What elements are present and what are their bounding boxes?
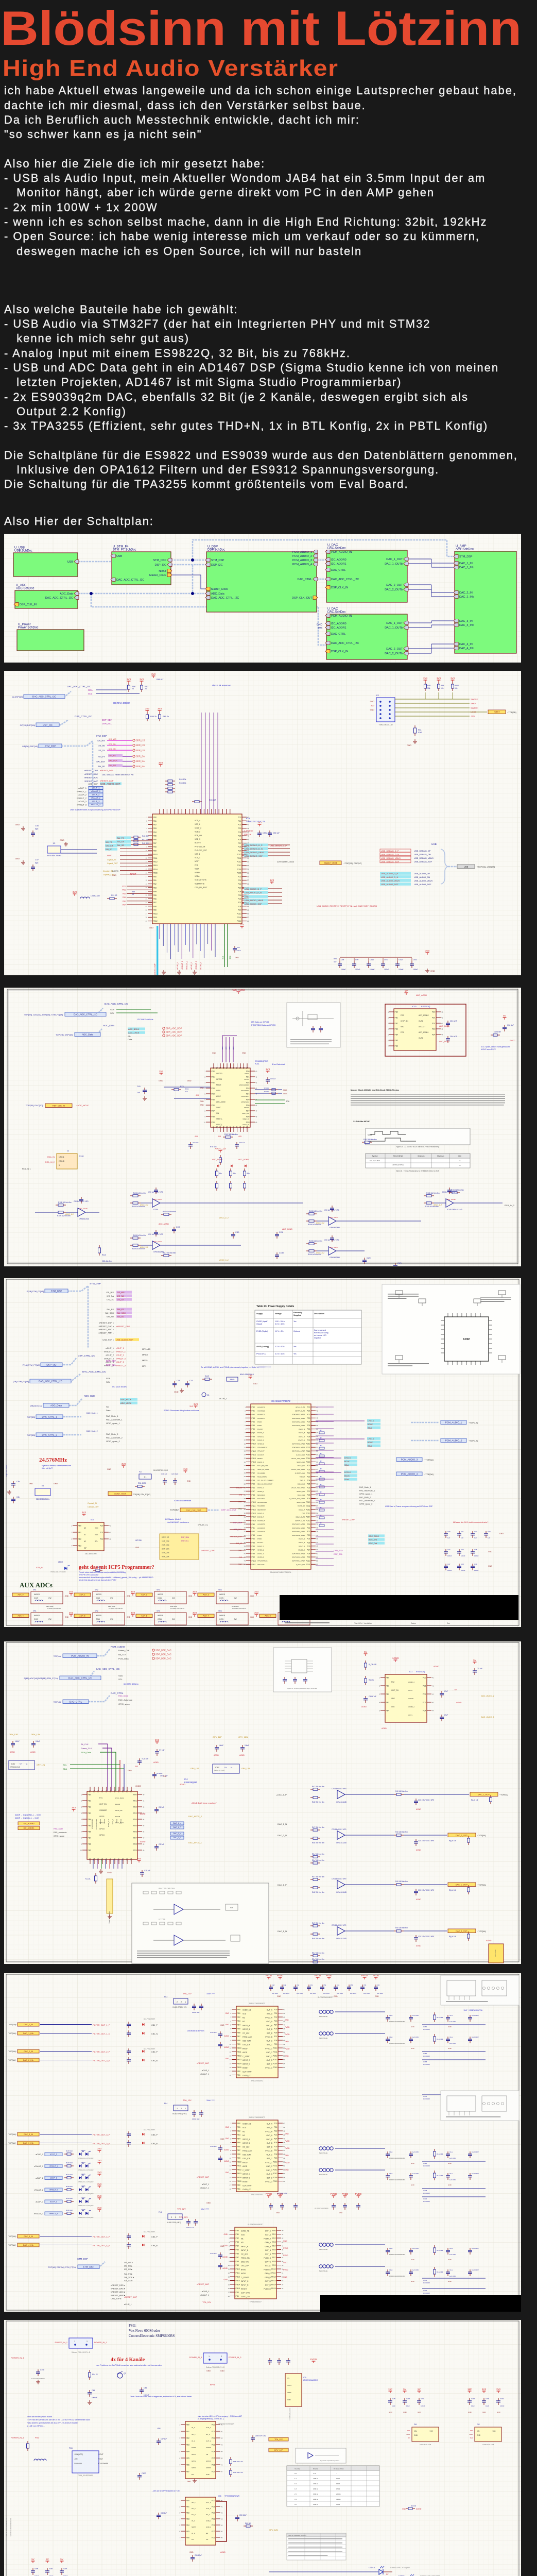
svg-text:nRESET_DAC ▸: nRESET_DAC ▸ [111, 2288, 125, 2290]
svg-text:C566E-AFL-CV34Q342: C566E-AFL-CV34Q342 [78, 2205, 94, 2207]
svg-text:PB2: PB2 [252, 1414, 255, 1416]
svg-text:P63: P63 [69, 2447, 73, 2449]
svg-text:GND: GND [375, 1995, 379, 1997]
svg-text:+VIN (VCC): +VIN (VCC) [74, 2453, 83, 2455]
svg-text:GND: GND [220, 2024, 224, 2026]
svg-text:PCM_Data: PCM_Data [81, 1751, 91, 1754]
svg-text:R65 2k: R65 2k [163, 716, 169, 718]
svg-text:55: 55 [283, 2066, 285, 2069]
svg-text:18: 18 [146, 879, 148, 882]
svg-text:PD14: PD14 [237, 868, 241, 870]
svg-text:10uF: 10uF [471, 2405, 475, 2407]
svg-text:AGND_1: AGND_1 [408, 1706, 414, 1708]
svg-text:DSP_CLK_OUT: DSP_CLK_OUT [186, 1509, 201, 1512]
svg-text:USB_DEBUG_SOF: USB_DEBUG_SOF [381, 860, 400, 863]
svg-text:C14: C14 [189, 1380, 193, 1382]
svg-text:I2C MAX 400kHz: I2C MAX 400kHz [113, 702, 130, 704]
svg-text:AGND: AGND [434, 1666, 439, 1668]
svg-text:32 R_20k: 32 R_20k [162, 1548, 169, 1550]
svg-text:PD4: PD4 [238, 831, 241, 833]
svg-text:C76 15p C0G / NP0: C76 15p C0G / NP0 [332, 1788, 347, 1790]
svg-text:TOP[3B]+: TOP[3B]+ [170, 1509, 179, 1511]
svg-text:PD7: PD7 [307, 1549, 310, 1551]
svg-text:GPIO4: GPIO4 [99, 1834, 105, 1836]
svg-text:PB12: PB12 [153, 920, 158, 922]
svg-text:SCL: SCL [238, 1508, 242, 1510]
svg-text:100nF: 100nF [500, 2405, 505, 2407]
svg-text:SDR_DSP_DAC: SDR_DSP_DAC [155, 1657, 171, 1660]
svg-text:BCLK_IN3: BCLK_IN3 [298, 1494, 305, 1496]
svg-text:TOP[5A]+: TOP[5A]+ [8, 2133, 16, 2136]
svg-text:220k thin film: 220k thin film [102, 1260, 112, 1262]
svg-text:DGND_6: DGND_6 [257, 1512, 264, 1514]
svg-text:PD2: PD2 [212, 2437, 215, 2439]
svg-text:GND: GND [225, 2126, 229, 2128]
svg-text:GND: GND [238, 1501, 242, 1503]
svg-text:VSS_1: VSS_1 [195, 853, 200, 855]
svg-text:PB5: PB5 [153, 894, 157, 896]
svg-text:DSP_SDA: DSP_SDA [106, 1360, 116, 1362]
svg-text:SCL2_M/_MP2: SCL2_M/_MP2 [257, 1465, 268, 1467]
svg-text:PG1: PG1 [401, 1031, 404, 1033]
svg-text:IOVDD_9: IOVDD_9 [298, 1549, 305, 1551]
svg-text:Frame_CLK: Frame_CLK [81, 1747, 92, 1750]
svg-text:R1xx 3R3: R1xx 3R3 [437, 2271, 443, 2273]
svg-text:Müssen die 5V2 nicht connected: Müssen die 5V2 nicht connected sein? [453, 1521, 489, 1523]
svg-text:3V3: 3V3 [371, 705, 374, 707]
svg-text:I2S_SA: I2S_SA [117, 1295, 124, 1297]
svg-text:34: 34 [244, 1527, 246, 1529]
svg-text:GND: GND [406, 2433, 410, 2435]
svg-text:nFAULT_3: nFAULT_3 [77, 804, 87, 806]
svg-text:PB9: PB9 [236, 2264, 239, 2266]
svg-text:3V3: 3V3 [97, 2159, 102, 2162]
svg-text:1: 1 [74, 2341, 75, 2343]
svg-text:100nF: 100nF [474, 1569, 479, 1571]
svg-text:AVDD: AVDD [242, 2165, 248, 2167]
svg-text:3V3: 3V3 [470, 2437, 473, 2439]
svg-text:24LC64T-E/SN: 24LC64T-E/SN [85, 1553, 97, 1555]
svg-text:10k: 10k [455, 687, 458, 689]
svg-text:ADC_AGND1: ADC_AGND1 [419, 1031, 429, 1033]
svg-text:0.5: 0.5 [295, 2472, 297, 2475]
svg-text:BCLK_IN2: BCLK_IN2 [298, 1483, 305, 1485]
svg-text:GND: GND [15, 823, 20, 826]
svg-text:R40 140 thin film: R40 140 thin film [395, 1790, 408, 1792]
svg-text:PB5: PB5 [153, 835, 157, 837]
svg-text:100nF 1uF: 100nF 1uF [192, 2011, 200, 2013]
svg-text:PB3: PB3 [78, 1545, 82, 1547]
svg-text:PD8: PD8 [307, 1494, 310, 1496]
svg-text:SDA: SDA [88, 689, 93, 691]
svg-text:PD11: PD11 [273, 2051, 277, 2053]
svg-text:5V: 5V [46, 2558, 49, 2561]
svg-text:CCW: CCW [34, 1597, 39, 1599]
svg-text:GND: GND [448, 2162, 452, 2164]
svg-text:IN_3: IN_3 [192, 2532, 195, 2534]
svg-text:PD6: PD6 [274, 2146, 278, 2148]
svg-text:0R: 0R [320, 1445, 322, 1447]
svg-text:GND: GND [283, 2240, 287, 2242]
svg-text:AGND: AGND [224, 2160, 229, 2162]
svg-text:AGND: AGND [239, 1754, 245, 1756]
svg-text:R59: R59 [441, 685, 444, 687]
svg-text:STM_DSP: STM_DSP [153, 559, 167, 562]
svg-text:C3b: C3b [16, 1481, 20, 1483]
svg-text:DGND_8: DGND_8 [299, 1432, 305, 1434]
svg-text:PB7: PB7 [153, 842, 157, 844]
svg-text:C178: C178 [423, 2190, 427, 2192]
svg-text:Crystal_OUT: Crystal_OUT [103, 873, 115, 876]
svg-text:1uF 100V: 1uF 100V [412, 2151, 419, 2153]
svg-text:IC14A: IC14A [79, 1155, 84, 1157]
svg-text:10uF 100V: 10uF 100V [472, 2269, 479, 2271]
svg-text:PD2: PD2 [272, 2238, 276, 2240]
svg-text:100nF: 100nF [36, 1740, 40, 1742]
svg-text:SDA_M/_MSO_M/MP: SDA_M/_MSO_M/MP [257, 1483, 272, 1485]
svg-text:P6: P6 [114, 1790, 116, 1792]
svg-text:PD13: PD13 [273, 2173, 278, 2175]
svg-text:WIPER: WIPER [158, 1594, 164, 1596]
svg-text:PD3: PD3 [423, 1702, 426, 1704]
svg-text:PB7: PB7 [252, 1549, 255, 1551]
svg-text:0R: 0R [320, 1476, 322, 1478]
svg-text:nRESET_DSP: nRESET_DSP [100, 769, 113, 772]
svg-text:PVDD: PVDD [285, 2048, 290, 2050]
svg-text:DSP_CTRL_I2C: DSP_CTRL_I2C [75, 715, 92, 718]
svg-text:PB2: PB2 [78, 1538, 82, 1540]
svg-text:GND: GND [276, 2212, 280, 2214]
svg-text:AGND: AGND [222, 2267, 228, 2269]
svg-text:LRCLK_IN2/_MP12: LRCLK_IN2/_MP12 [291, 1487, 305, 1489]
svg-text:OPA1612AID: OPA1612AID [336, 1801, 347, 1803]
svg-text:SLPS4724000B3PT: SLPS4724000B3PT [318, 1996, 333, 1998]
svg-text:OUT_1: OUT_1 [206, 2427, 211, 2429]
svg-text:HUMD SP60 (HK?): HUMD SP60 (HK?) [167, 2222, 181, 2224]
svg-text:C566E-AFL-CV34Q342: C566E-AFL-CV34Q342 [78, 2193, 94, 2195]
svg-text:AGND: AGND [416, 1945, 421, 1947]
svg-text:+VO: +VO [492, 2430, 496, 2432]
svg-text:16 R_10k: 16 R_10k [162, 1540, 169, 1543]
svg-text:CCW: CCW [158, 1597, 162, 1599]
svg-text:41: 41 [109, 1531, 111, 1533]
svg-text:GND: GND [206, 2370, 211, 2372]
svg-text:PD1: PD1 [307, 1468, 310, 1470]
svg-text:PD6: PD6 [212, 2537, 215, 2539]
svg-text:R(L)b 1M: R(L)b 1M [471, 1799, 478, 1801]
svg-text:1nF 100V: 1nF 100V [423, 2063, 430, 2065]
svg-text:GND: GND [29, 1483, 33, 1485]
svg-text:TPS7A3301RGWR: TPS7A3301RGWR [224, 2495, 240, 2497]
svg-text:40: 40 [283, 2008, 285, 2010]
svg-text:R60 0R: R60 0R [411, 2505, 417, 2507]
svg-text:5V: 5V [503, 1014, 506, 1017]
svg-text:R1 (kΩ): R1 (kΩ) [313, 2468, 318, 2470]
svg-text:10uH ???: 10uH ??? [201, 2208, 209, 2210]
svg-text:P0: P0 [213, 1126, 215, 1128]
svg-text:SAI_SD: SAI_SD [98, 765, 105, 768]
svg-text:SWDIO: SWDIO [471, 707, 478, 709]
svg-text:GND3: GND3 [135, 1785, 141, 1787]
svg-text:48 R_30k: 48 R_30k [162, 1556, 169, 1558]
svg-text:1uF 100V: 1uF 100V [449, 2042, 456, 2044]
svg-text:PD0: PD0 [307, 1406, 310, 1409]
svg-text:11: 11 [244, 1443, 246, 1445]
svg-text:VDD: VDD [241, 2234, 245, 2236]
svg-text:24: 24 [146, 902, 148, 904]
svg-text:PA5: PA5 [123, 896, 126, 899]
svg-text:DAC_ADC_CTRL_I2C: DAC_ADC_CTRL_I2C [74, 1013, 98, 1016]
svg-text:20: 20 [244, 1476, 246, 1478]
svg-text:PD8: PD8 [307, 1553, 310, 1555]
svg-text:TOP[3B], STM_F7[4C]: TOP[3B], STM_F7[4C] [133, 1494, 150, 1496]
svg-text:PD0: PD0 [133, 1794, 137, 1796]
svg-text:5p6: 5p6 [35, 828, 38, 830]
svg-text:48: 48 [143, 1843, 145, 1845]
svg-text:DAC_CTRL: DAC_CTRL [70, 1701, 82, 1703]
svg-text:0R: 0R [320, 1506, 322, 1509]
svg-text:NRST: NRST [195, 860, 199, 862]
svg-text:PB13: PB13 [236, 2280, 240, 2282]
svg-text:45: 45 [221, 2530, 223, 2532]
svg-text:PB4: PB4 [252, 1480, 255, 1482]
svg-text:NR/SS: NR/SS [192, 2526, 196, 2528]
svg-text:35: 35 [244, 1531, 246, 1533]
svg-text:GND: GND [135, 1547, 140, 1549]
svg-text:2 1: 2 1 [144, 1476, 147, 1478]
svg-text:MH1 MH2: MH1 MH2 [46, 1626, 54, 1627]
svg-text:25: 25 [244, 1494, 246, 1496]
svg-text:PB0: PB0 [78, 1525, 82, 1527]
svg-text:5.0: 5.0 [295, 2503, 297, 2505]
svg-text:OC_ADJ: OC_ADJ [241, 2253, 248, 2256]
svg-text:nRESET_AMP: nRESET_AMP [124, 2296, 137, 2298]
svg-text:+TOP[4A]: +TOP[4A] [477, 1884, 486, 1886]
svg-text:AGND: AGND [416, 1899, 421, 1901]
svg-text:DGND_2: DGND_2 [257, 1545, 264, 1547]
svg-text:18: 18 [244, 1468, 246, 1470]
svg-text:DAC_1_OUT: DAC_1_OUT [386, 622, 403, 625]
svg-text:GND_C: GND_C [266, 2165, 272, 2167]
svg-text:PB3: PB3 [153, 827, 157, 829]
svg-text:24.576MHz: 24.576MHz [39, 1457, 67, 1463]
svg-text:GVDD_CD: GVDD_CD [242, 2075, 251, 2077]
svg-text:an internal LDO: an internal LDO [314, 1334, 326, 1336]
svg-text:STM_DSP: STM_DSP [90, 1282, 101, 1285]
svg-text:PB5: PB5 [252, 1541, 255, 1544]
svg-text:J2: J2 [67, 1150, 69, 1152]
svg-text:PD9: PD9 [133, 1850, 137, 1852]
svg-text:Output): Output) [256, 1323, 262, 1325]
svg-text:WIPER: WIPER [219, 1594, 226, 1596]
svg-text:C58 1uF: C58 1uF [270, 1078, 276, 1080]
svg-text:till 3V2 zum DSP?: till 3V2 zum DSP? [481, 1048, 496, 1050]
svg-text:FILTER_OUT_2_N: FILTER_OUT_2_N [93, 2059, 110, 2062]
svg-text:1.8V – 5% to: 1.8V – 5% to [275, 1320, 285, 1323]
svg-text:C125: C125 [423, 2162, 427, 2164]
svg-text:FREQ_ADJ: FREQ_ADJ [241, 2257, 250, 2259]
svg-text:40: 40 [255, 1070, 257, 1072]
svg-text:ADC.SchDoc: ADC.SchDoc [16, 587, 34, 590]
svg-text:PB9: PB9 [153, 850, 157, 852]
svg-text:CHIP_EN: CHIP_EN [242, 1112, 249, 1114]
svg-text:PB0: PB0 [252, 1523, 255, 1526]
svg-text:37: 37 [244, 1538, 246, 1540]
svg-text:A],DSP[1B]: A],DSP[1B] [12, 696, 23, 698]
svg-text:SCL: SCL [110, 1012, 115, 1014]
svg-text:GND: GND [448, 2259, 452, 2261]
svg-text:DGND_5: DGND_5 [257, 1487, 264, 1489]
svg-text:USB_DEBUG_D_P: USB_DEBUG_D_P [381, 850, 399, 852]
svg-text:41: 41 [441, 1016, 443, 1019]
svg-text:R48 22R: R48 22R [142, 842, 149, 844]
svg-text:C11 1uF: C11 1uF [144, 1870, 150, 1872]
svg-text:GPIO6: GPIO6 [244, 1107, 249, 1109]
svg-text:C39: C39 [474, 1563, 477, 1565]
svg-text:GND: GND [430, 970, 435, 972]
svg-text:PD0: PD0 [246, 1071, 250, 1073]
svg-text:DAC_1_OUTb: DAC_1_OUTb [385, 563, 403, 566]
svg-text:PB7: PB7 [236, 2257, 239, 2259]
svg-text:2.2nF: 2.2nF [237, 950, 241, 952]
svg-text:OSC_IOM: OSC_IOM [242, 2154, 251, 2156]
svg-text:nFAULT_2: nFAULT_2 [186, 961, 188, 970]
svg-text:GND: GND [220, 2370, 224, 2372]
svg-text:46: 46 [143, 1831, 145, 1833]
svg-text:SDat: SDat [368, 1445, 372, 1447]
svg-text:PLLFILT: PLLFILT [257, 1428, 263, 1430]
svg-text:OUT_D: OUT_D [267, 2059, 273, 2061]
svg-text:C136: C136 [279, 1231, 283, 1233]
svg-text:50.03: 50.03 [336, 2503, 340, 2505]
svg-text:ADC_AGND: ADC_AGND [330, 1216, 339, 1218]
svg-text:LRCLK: LRCLK [368, 1420, 374, 1422]
svg-text:VR1: VR1 [33, 1610, 37, 1612]
svg-text:100nF: 100nF [219, 1744, 223, 1747]
svg-text:I2C_ADDR0: I2C_ADDR0 [24, 1823, 34, 1825]
svg-text:C50: C50 [297, 1984, 300, 1986]
svg-text:PD3: PD3 [246, 1088, 250, 1090]
svg-text:PD6: PD6 [246, 1105, 250, 1107]
svg-text:MA5772-AE: MA5772-AE [319, 2015, 327, 2018]
svg-text:USB_AUDIO_REXTPHY REXTPHY 3: USB_AUDIO_REXTPHY REXTPHY 3k nach GND? D… [317, 905, 377, 907]
svg-text:45: 45 [143, 1824, 145, 1826]
svg-text:USB: USB [431, 843, 437, 846]
svg-text:R1xx 3R3: R1xx 3R3 [437, 2038, 443, 2040]
svg-text:USB_DEBUG_D_N: USB_DEBUG_D_N [245, 848, 263, 850]
svg-text:P2: P2 [97, 1858, 99, 1860]
svg-text:PB4: PB4 [395, 1034, 399, 1036]
svg-text:TOP[4B]: TOP[4B] [54, 1701, 61, 1703]
svg-text:4V5: 4V5 [218, 1136, 221, 1138]
svg-text:CHIP_SN: CHIP_SN [401, 1020, 408, 1022]
svg-text:SD: SD [128, 1035, 131, 1038]
svg-text:1V3: 1V3 [248, 1374, 253, 1377]
svg-text:PD2: PD2 [307, 1472, 310, 1474]
svg-text:TU3 1uF: TU3 1uF [142, 1758, 148, 1760]
svg-text:PD5: PD5 [238, 894, 241, 896]
svg-text:100nF: 100nF [421, 2405, 425, 2407]
svg-text:PB7: PB7 [88, 1837, 92, 1839]
svg-text:17: 17 [228, 2291, 230, 2293]
svg-text:PGND: PGND [257, 1421, 263, 1423]
svg-text:GPIO_spare: GPIO_spare [118, 1703, 130, 1705]
svg-text:VREF_L: VREF_L [216, 1118, 222, 1120]
svg-text:TPA3255DDV: TPA3255DDV [251, 2194, 263, 2196]
svg-text:PD1: PD1 [238, 879, 241, 882]
svg-text:MISO/ADDR2: MISO/ADDR2 [239, 1084, 249, 1086]
svg-text:GND: GND [128, 1770, 132, 1772]
svg-text:BST_A: BST_A [267, 2013, 272, 2015]
svg-text:69: 69 [316, 1512, 318, 1514]
svg-text:DAC_1_OUT+: DAC_1_OUT+ [456, 1884, 469, 1886]
svg-text:GPIO3: GPIO3 [99, 1828, 105, 1830]
svg-text:AVCC_1/-2: AVCC_1/-2 [140, 1246, 148, 1248]
svg-text:P5: P5 [230, 1067, 232, 1069]
svg-text:GND: GND [285, 2019, 289, 2021]
svg-text:SAI_SD: SAI_SD [117, 1315, 124, 1318]
svg-text:PVDD: PVDD [373, 1974, 379, 1977]
svg-text:WIPER: WIPER [219, 1615, 226, 1617]
svg-text:I2C_ADDR0: I2C_ADDR0 [331, 558, 347, 562]
svg-text:TPA_12V: TPA_12V [177, 2208, 186, 2210]
svg-text:DAC_4_INb: DAC_4_INb [459, 647, 474, 650]
svg-text:C_START: C_START [241, 2277, 249, 2279]
svg-text:100nF: 100nF [399, 969, 404, 971]
svg-text:1: 1 [185, 2108, 186, 2110]
svg-text:ADC_AGND: ADC_AGND [232, 989, 245, 991]
svg-text:FILTER_OUT_1_P: FILTER_OUT_1_P [93, 2024, 110, 2026]
svg-text:STM_DSP: STM_DSP [51, 1290, 62, 1293]
svg-text:IC8C: IC8C [11, 1763, 15, 1765]
svg-text:GPIV1: GPIV1 [192, 2453, 196, 2455]
svg-text:PB3: PB3 [237, 2020, 241, 2022]
svg-text:SWCLK: SWCLK [471, 698, 478, 701]
svg-text:STM32F723VCT6: STM32F723VCT6 [246, 820, 265, 823]
svg-text:RCA_IN_2: RCA_IN_2 [505, 1204, 515, 1207]
svg-text:nRESET_DSP: nRESET_DSP [342, 1519, 355, 1521]
svg-text:C47 1uF: C47 1uF [161, 2438, 167, 2440]
svg-text:PB6: PB6 [252, 1487, 255, 1489]
svg-text:DSP_SDA: DSP_SDA [334, 1550, 343, 1552]
svg-text:n.b.: n.b. [185, 1091, 188, 1093]
svg-text:TPA_12V: TPA_12V [274, 2438, 283, 2441]
svg-text:DAC_CTRL: DAC_CTRL [331, 569, 345, 572]
svg-text:GVDD_AB: GVDD_AB [242, 2009, 251, 2011]
svg-text:1uF 100V: 1uF 100V [377, 1992, 383, 1994]
svg-text:CCW: CCW [219, 1618, 224, 1620]
svg-text:0R: 0R [320, 1522, 322, 1524]
svg-text:41: 41 [316, 1410, 318, 1412]
svg-text:22R: 22R [221, 1046, 223, 1049]
svg-text:X2: X2 [53, 842, 56, 844]
svg-text:41: 41 [282, 2233, 284, 2235]
svg-text:2: 2 [86, 2341, 88, 2343]
svg-text:DSP_I2C: DSP_I2C [43, 724, 53, 726]
svg-text:Bit_CLK: Bit_CLK [81, 1743, 89, 1745]
svg-text:PD4: PD4 [274, 2138, 278, 2140]
svg-text:Master_Clock: Master_Clock [114, 1493, 126, 1495]
svg-text:HUMD SP60 (HK?): HUMD SP60 (HK?) [172, 2006, 186, 2008]
svg-text:15P: 15P [407, 2430, 410, 2432]
svg-text:PD12: PD12 [237, 920, 241, 922]
svg-text:Crystal_IN: Crystal_IN [107, 859, 116, 861]
svg-text:DSP_I2C: DSP_I2C [155, 564, 167, 567]
svg-text:1.2 V ± 5%: 1.2 V ± 5% [275, 1330, 284, 1332]
svg-text:GND: GND [469, 2433, 473, 2435]
svg-text:C38: C38 [461, 1563, 464, 1565]
svg-text:10uH ???: 10uH ??? [206, 2099, 215, 2102]
